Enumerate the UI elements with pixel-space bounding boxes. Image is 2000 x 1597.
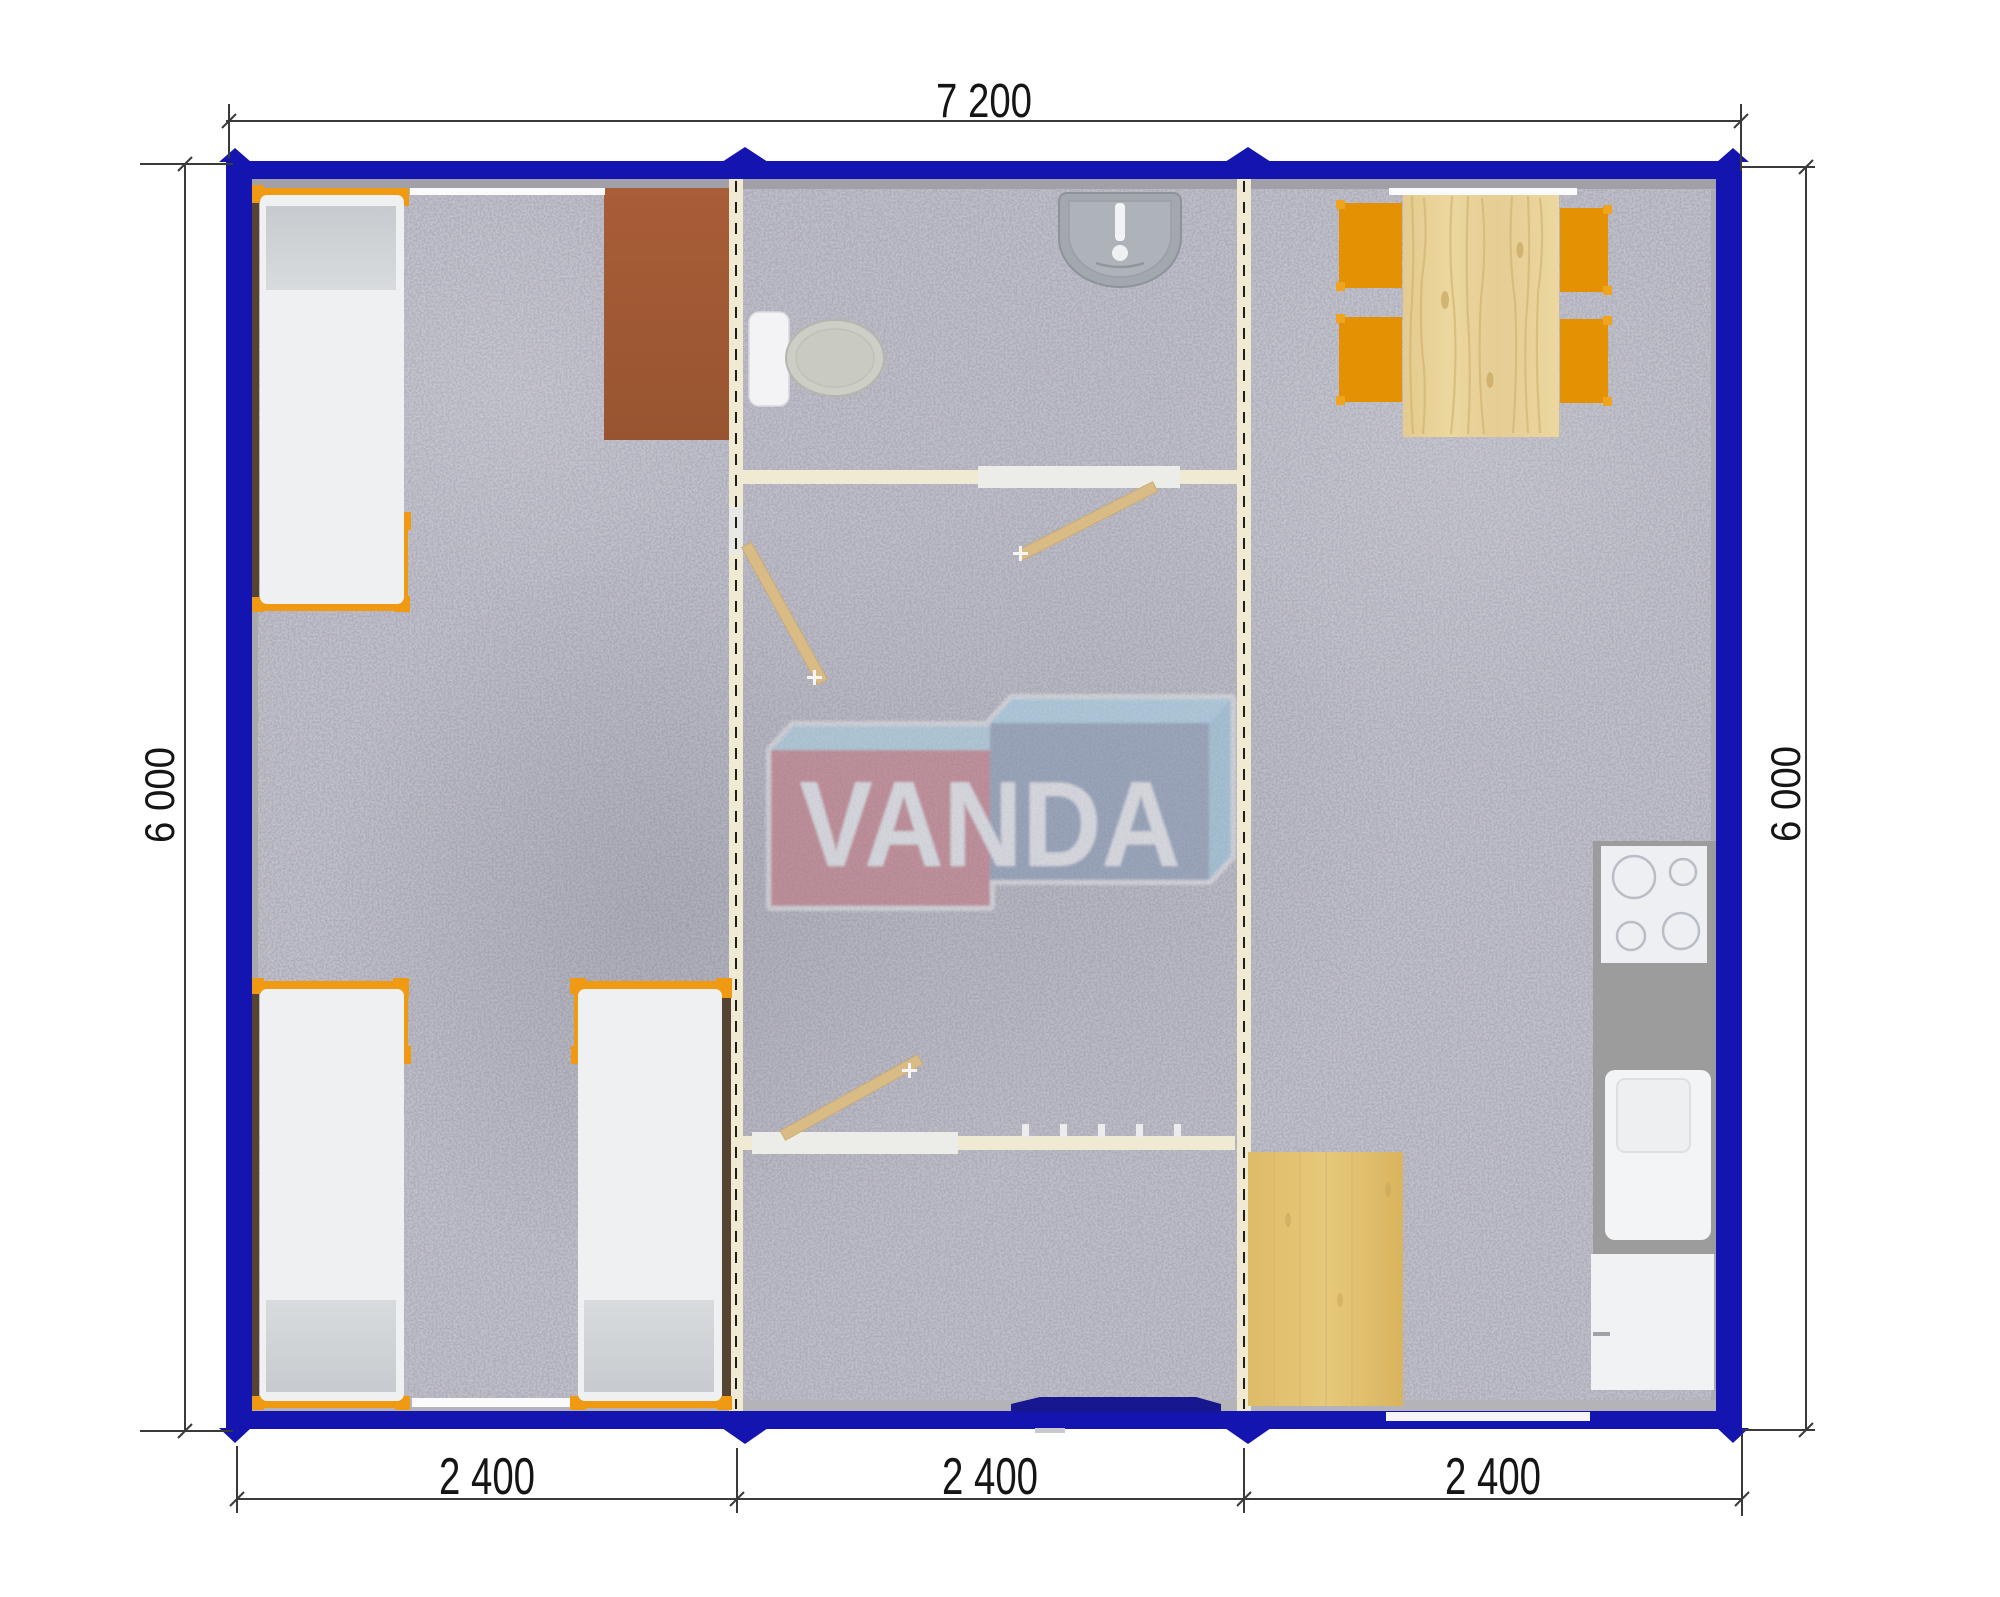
svg-text:2 400: 2 400 — [1445, 1448, 1541, 1506]
svg-text:2 400: 2 400 — [439, 1448, 535, 1506]
svg-text:6 000: 6 000 — [136, 747, 183, 843]
svg-text:6 000: 6 000 — [1762, 746, 1809, 842]
svg-text:2 400: 2 400 — [942, 1448, 1038, 1506]
svg-text:7 200: 7 200 — [936, 75, 1032, 128]
svg-text:VANDA: VANDA — [800, 756, 1181, 892]
